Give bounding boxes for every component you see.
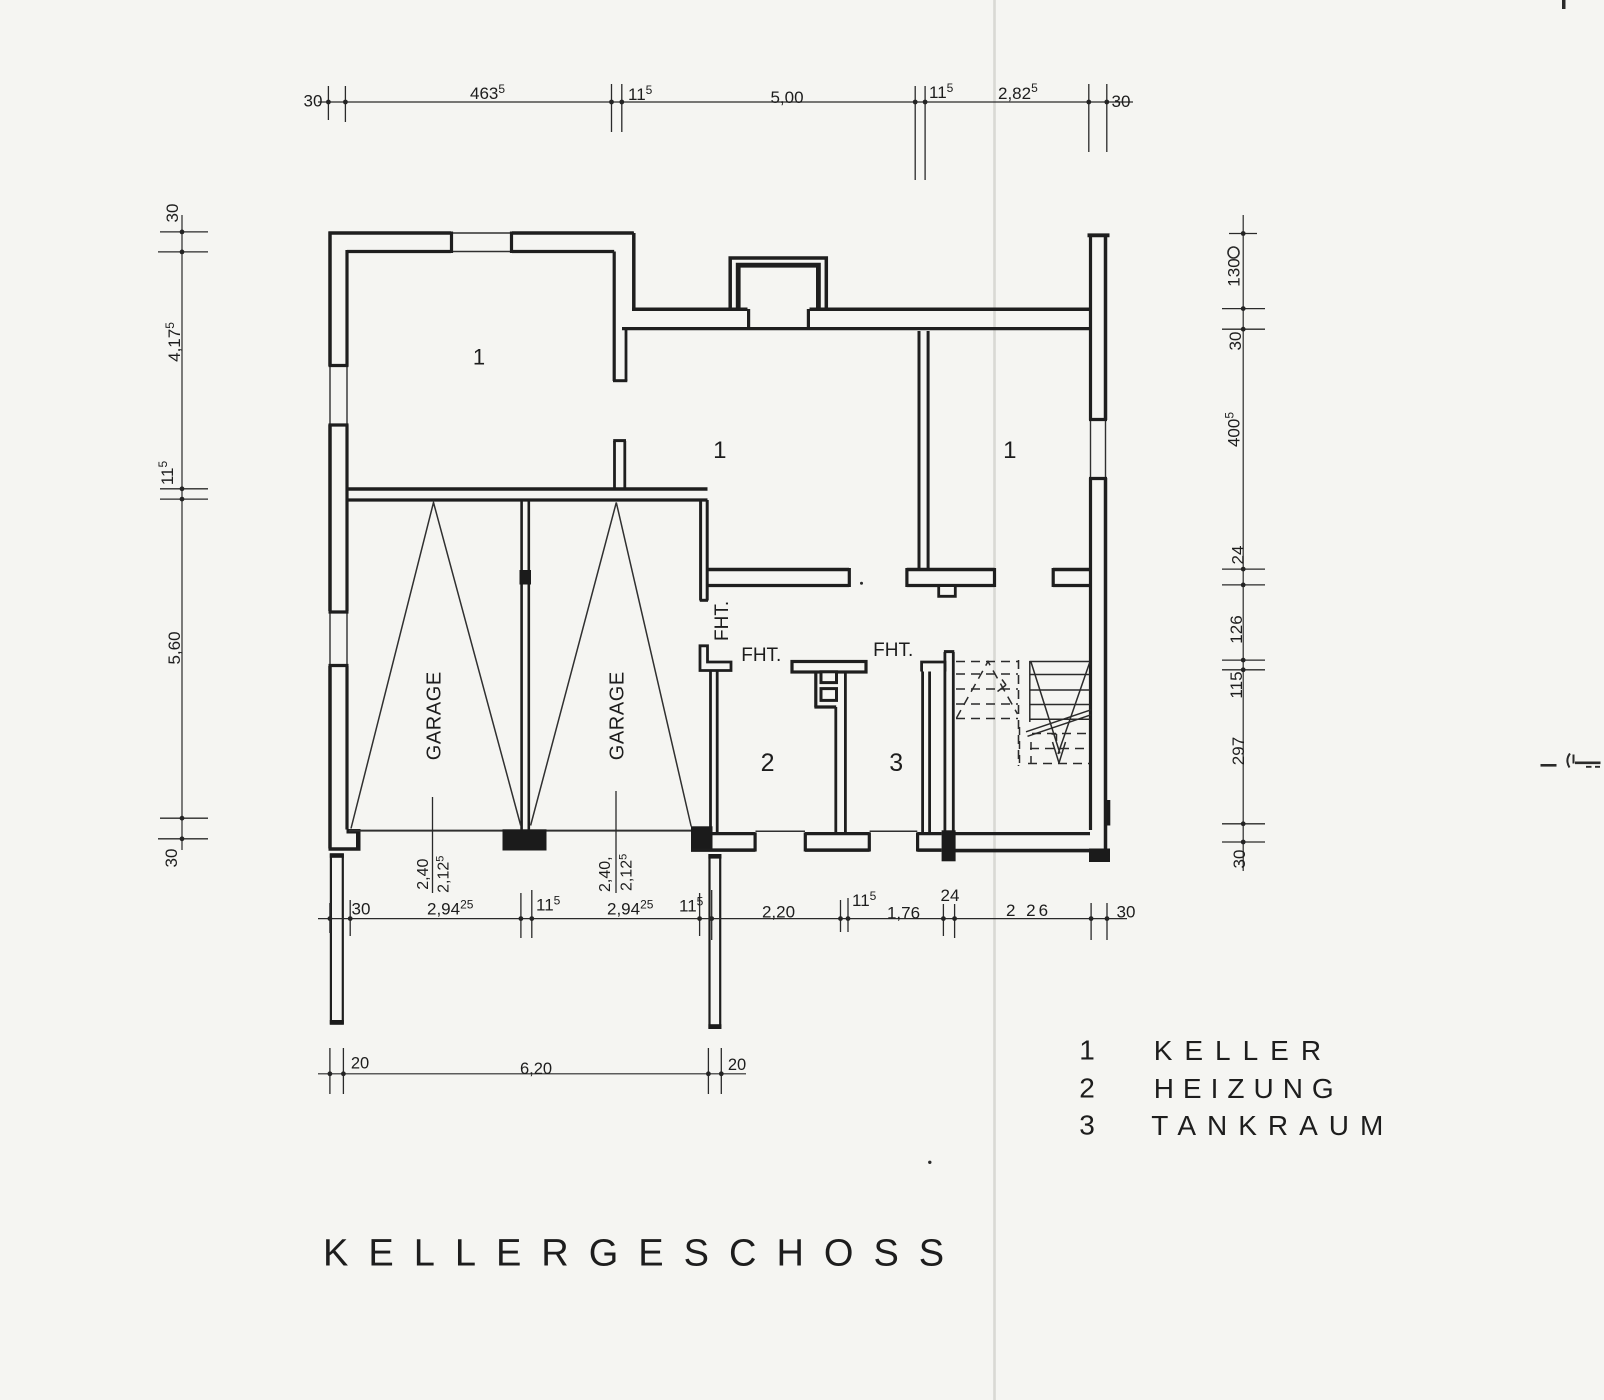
- svg-text:HEIZUNG: HEIZUNG: [1154, 1073, 1343, 1104]
- svg-text:TANKRAUM: TANKRAUM: [1151, 1110, 1394, 1141]
- svg-text:1: 1: [473, 345, 485, 370]
- svg-text:30: 30: [1112, 92, 1131, 111]
- svg-text:5,00: 5,00: [770, 88, 803, 107]
- svg-text:1: 1: [1079, 1035, 1095, 1066]
- svg-text:30: 30: [352, 900, 371, 919]
- svg-text:1: 1: [713, 437, 726, 464]
- svg-text:KELLERGESCHOSS: KELLERGESCHOSS: [323, 1233, 964, 1275]
- svg-text:1: 1: [1003, 437, 1016, 464]
- svg-text:30: 30: [304, 92, 323, 111]
- svg-text:20: 20: [351, 1055, 369, 1073]
- svg-text:20: 20: [728, 1056, 746, 1074]
- svg-text:FHT.: FHT.: [712, 601, 733, 641]
- svg-text:2: 2: [761, 749, 775, 777]
- svg-text:2,40: 2,40: [415, 859, 432, 890]
- svg-text:30: 30: [1230, 850, 1249, 869]
- svg-text:3: 3: [1079, 1110, 1095, 1141]
- svg-text:115: 115: [1227, 671, 1246, 698]
- svg-text:5,60: 5,60: [165, 631, 184, 664]
- svg-text:3: 3: [889, 749, 903, 777]
- svg-text:6,20: 6,20: [520, 1060, 552, 1078]
- svg-text:126: 126: [1227, 615, 1246, 643]
- svg-text:KELLER: KELLER: [1154, 1035, 1333, 1066]
- svg-text:297: 297: [1229, 737, 1248, 765]
- svg-text:2,40,: 2,40,: [597, 856, 614, 892]
- svg-text:24: 24: [941, 886, 960, 905]
- svg-text:30: 30: [1226, 332, 1245, 351]
- svg-text:FHT.: FHT.: [873, 640, 913, 661]
- svg-text:2 26: 2 26: [1006, 901, 1051, 920]
- svg-text:130: 130: [1225, 258, 1244, 286]
- svg-text:30: 30: [163, 204, 182, 223]
- svg-text:30: 30: [1117, 903, 1136, 922]
- svg-text:GARAGE: GARAGE: [606, 671, 628, 760]
- svg-text:2,20: 2,20: [762, 903, 795, 922]
- svg-text:GARAGE: GARAGE: [423, 671, 445, 760]
- svg-text:30: 30: [162, 849, 181, 868]
- svg-text:FHT.: FHT.: [741, 645, 781, 666]
- svg-text:24: 24: [1229, 546, 1248, 565]
- svg-text:1,76: 1,76: [887, 904, 920, 923]
- svg-text:2: 2: [1079, 1073, 1095, 1104]
